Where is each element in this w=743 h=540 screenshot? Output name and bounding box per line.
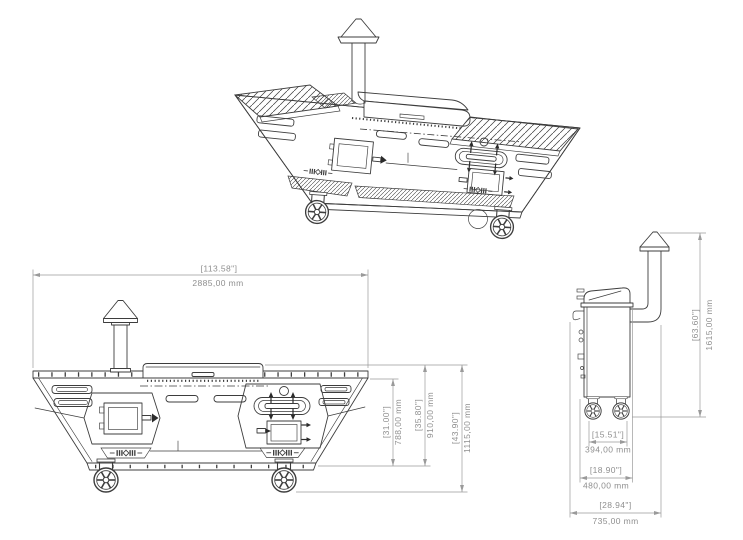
dim-side-height-mm: 1615,00 mm — [704, 299, 714, 350]
side-view — [573, 232, 669, 419]
dim-front-table-height-mm: 788,00 mm — [393, 399, 403, 445]
dim-side-height-in: [63.60"] — [690, 309, 700, 341]
dim-front-total-height-in: [43.90"] — [450, 412, 460, 444]
front-left-vent — [110, 450, 142, 456]
side-front-wheel — [585, 397, 601, 419]
technical-drawing-svg: [113.58"] 2885,00 mm [31.00"] 788,00 mm … — [0, 0, 743, 540]
front-ash-door — [257, 421, 311, 444]
isometric-view — [235, 19, 580, 239]
dim-front-total-height-mm: 1115,00 mm — [462, 403, 472, 453]
front-slide-tray — [254, 392, 310, 420]
dim-front-lid-height-mm: 910,00 mm — [425, 392, 435, 438]
dim-side-depth-in: [18.90"] — [590, 465, 622, 475]
dim-side-depth-mm: 480,00 mm — [583, 481, 629, 491]
side-tabletop — [581, 303, 633, 307]
side-chimney — [630, 232, 669, 322]
side-handles — [573, 289, 585, 378]
dim-side-track-in: [15.51"] — [592, 430, 624, 440]
front-left-drawers — [35, 386, 92, 419]
dim-side-track-mm: 394,00 mm — [585, 445, 631, 455]
dim-front-table-height-in: [31.00"] — [381, 406, 391, 438]
front-view — [33, 301, 368, 493]
front-firebox-door — [100, 403, 159, 434]
dim-side-total-depth-mm: 735,00 mm — [592, 516, 638, 526]
dim-front-width-in: [113.58"] — [201, 264, 238, 274]
iso-chimney — [338, 19, 379, 104]
front-handle-right — [214, 396, 246, 403]
iso-rear-wheel — [469, 210, 488, 229]
front-lid-handle — [192, 373, 214, 377]
dim-side-total-depth-in: [28.94"] — [599, 500, 631, 510]
technical-drawing-page: [113.58"] 2885,00 mm [31.00"] 788,00 mm … — [0, 0, 743, 540]
dim-front-width-mm: 2885,00 mm — [192, 278, 243, 288]
front-left-vent-panel — [101, 448, 151, 458]
dim-front-lid-height-in: [35.80"] — [413, 399, 423, 431]
front-handle-left — [166, 396, 198, 403]
front-right-vent — [266, 450, 298, 456]
side-body — [584, 307, 630, 397]
side-lid — [584, 288, 630, 303]
front-chimney — [104, 301, 138, 373]
front-thermometer-port — [280, 387, 289, 396]
side-rear-wheel — [613, 397, 629, 419]
